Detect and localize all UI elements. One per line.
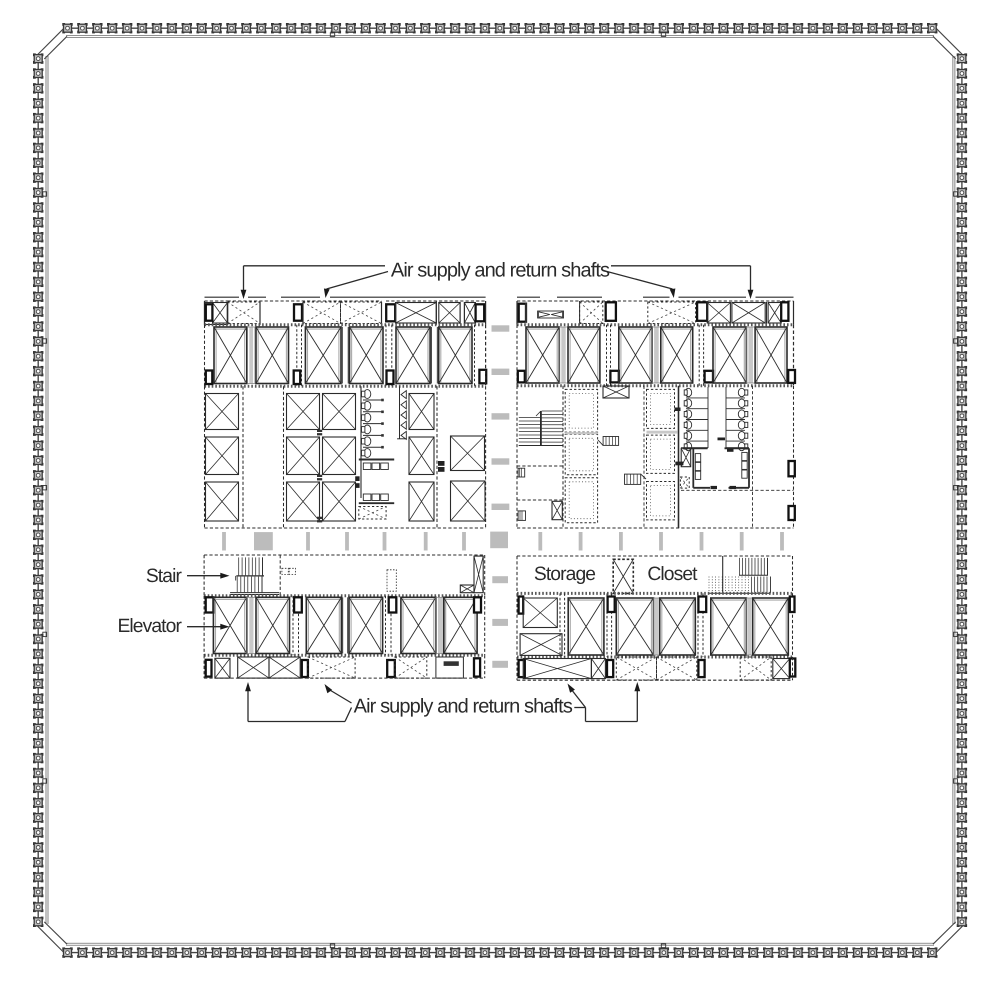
svg-text:Storage: Storage (534, 564, 595, 585)
svg-text:Air supply and return shafts: Air supply and return shafts (391, 260, 610, 282)
svg-text:Air supply and return shafts: Air supply and return shafts (354, 696, 573, 718)
svg-text:Closet: Closet (647, 564, 698, 585)
svg-text:Elevator: Elevator (117, 616, 182, 637)
svg-text:Stair: Stair (146, 566, 183, 587)
